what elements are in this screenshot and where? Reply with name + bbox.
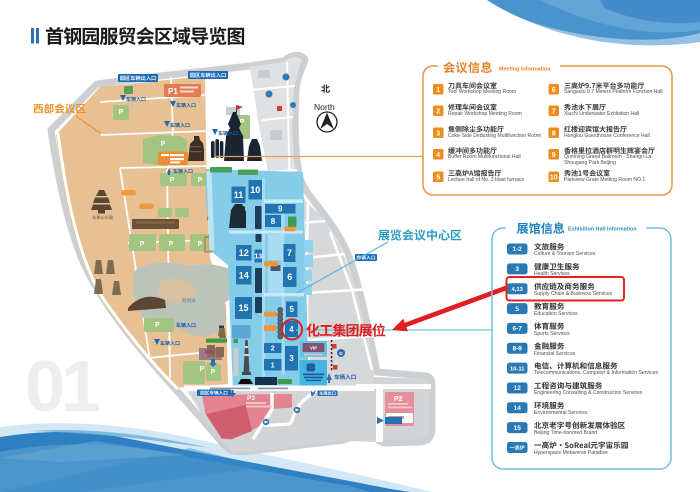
svg-text:5: 5 [290, 305, 295, 314]
svg-text:P: P [169, 241, 174, 248]
svg-text:14: 14 [514, 405, 522, 412]
svg-text:Exhibition Hall Information: Exhibition Hall Information [568, 227, 637, 233]
svg-text:10: 10 [250, 185, 260, 195]
svg-text:P: P [140, 241, 145, 248]
svg-text:5: 5 [515, 306, 519, 313]
svg-text:9: 9 [552, 152, 556, 159]
svg-text:3: 3 [515, 266, 519, 273]
svg-text:11: 11 [234, 190, 244, 200]
svg-text:4,13: 4,13 [512, 287, 524, 293]
svg-text:P: P [119, 109, 124, 116]
svg-text:14: 14 [239, 270, 249, 280]
svg-text:12: 12 [514, 385, 522, 392]
svg-text:P: P [198, 177, 203, 184]
svg-text:7: 7 [552, 108, 556, 115]
svg-text:13: 13 [254, 254, 262, 261]
svg-text:G: G [339, 351, 343, 356]
svg-text:8: 8 [552, 130, 556, 137]
svg-text:10: 10 [550, 174, 558, 181]
svg-text:1: 1 [436, 87, 440, 94]
svg-text:10-11: 10-11 [510, 366, 525, 372]
svg-text:P: P [170, 177, 175, 184]
svg-text:15: 15 [514, 425, 522, 432]
svg-text:15: 15 [238, 303, 248, 313]
svg-text:8-9: 8-9 [512, 345, 522, 352]
svg-text:P: P [211, 369, 216, 376]
svg-text:P: P [155, 322, 160, 329]
svg-text:P1: P1 [168, 87, 178, 96]
svg-text:1-2: 1-2 [512, 246, 522, 253]
svg-text:2: 2 [436, 108, 440, 115]
svg-text:5: 5 [436, 174, 440, 181]
svg-text:6: 6 [552, 87, 556, 94]
svg-text:North: North [314, 102, 335, 112]
svg-text:6: 6 [287, 272, 292, 282]
svg-text:P: P [161, 141, 166, 148]
svg-text:4: 4 [289, 325, 294, 334]
svg-text:2: 2 [271, 346, 275, 353]
svg-text:9: 9 [278, 205, 283, 214]
svg-text:P3: P3 [247, 395, 255, 402]
svg-text:P2: P2 [394, 396, 403, 403]
svg-text:3: 3 [289, 354, 294, 363]
svg-text:4: 4 [436, 152, 440, 159]
svg-text:Meeting information: Meeting information [499, 67, 551, 73]
svg-text:3: 3 [436, 130, 440, 137]
svg-text:8: 8 [271, 217, 276, 226]
svg-text:12: 12 [239, 248, 249, 258]
svg-text:6-7: 6-7 [512, 326, 522, 333]
svg-text:P: P [198, 241, 203, 248]
svg-text:P: P [200, 366, 205, 373]
svg-text:1: 1 [271, 362, 275, 369]
svg-text:7: 7 [287, 248, 292, 258]
svg-text:VIP: VIP [310, 346, 317, 351]
